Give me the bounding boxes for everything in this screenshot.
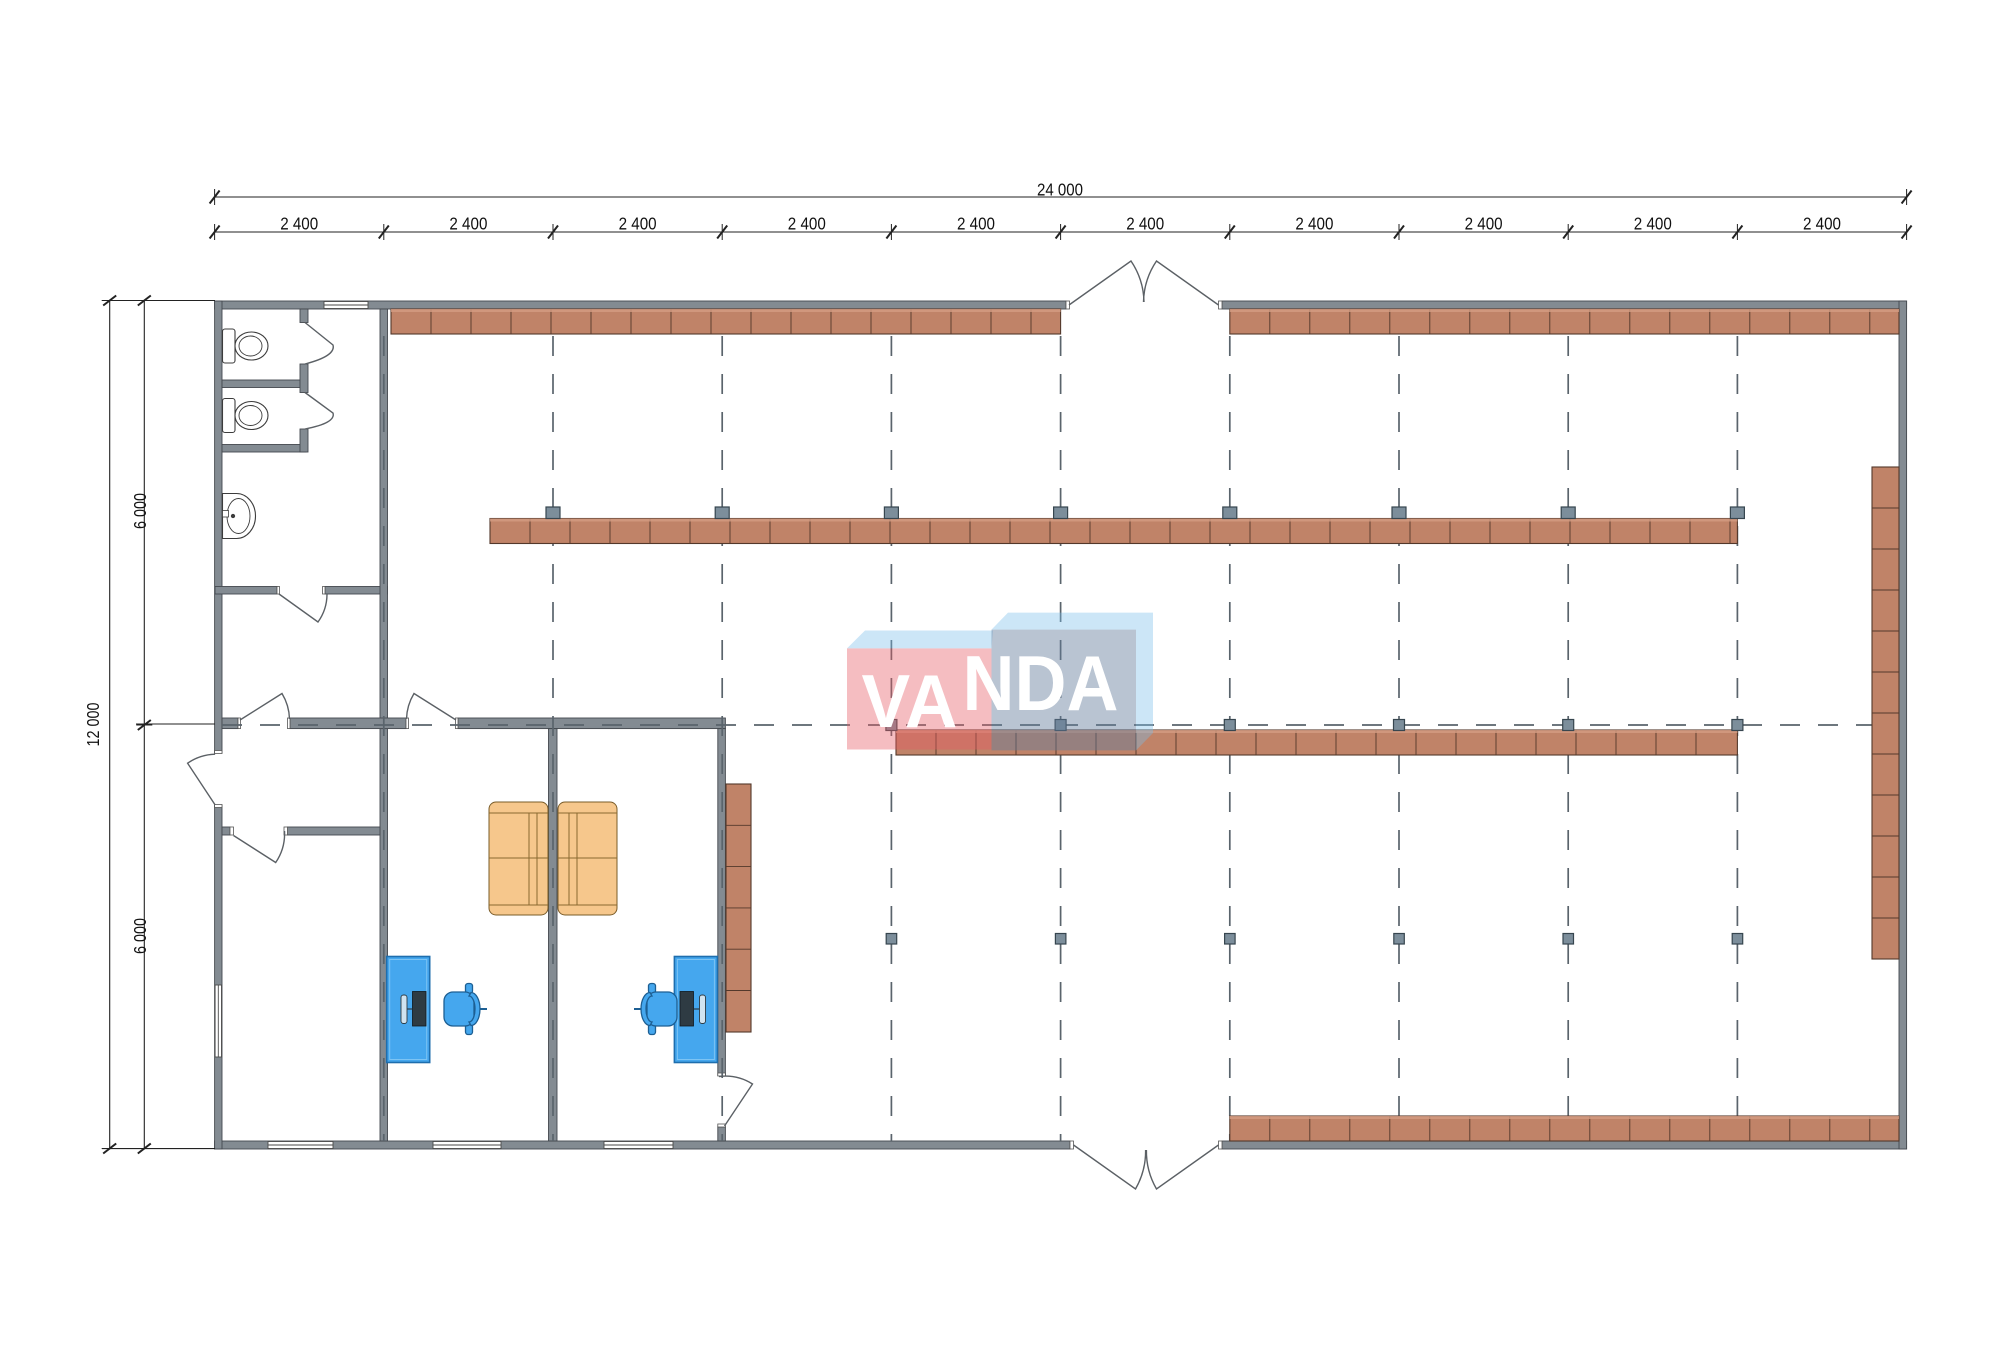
svg-text:6 000: 6 000: [130, 918, 150, 954]
svg-text:2 400: 2 400: [1126, 214, 1164, 234]
svg-text:2 400: 2 400: [1465, 214, 1503, 234]
svg-text:2 400: 2 400: [1803, 214, 1841, 234]
svg-text:2 400: 2 400: [788, 214, 826, 234]
svg-text:VA: VA: [862, 659, 958, 743]
svg-text:6 000: 6 000: [130, 493, 150, 529]
svg-text:2 400: 2 400: [957, 214, 995, 234]
svg-text:2 400: 2 400: [1634, 214, 1672, 234]
svg-text:NDA: NDA: [963, 639, 1119, 727]
svg-text:2 400: 2 400: [280, 214, 318, 234]
svg-text:2 400: 2 400: [619, 214, 657, 234]
svg-text:2 400: 2 400: [449, 214, 487, 234]
svg-text:12 000: 12 000: [83, 702, 103, 746]
svg-text:24 000: 24 000: [1037, 180, 1083, 200]
svg-text:2 400: 2 400: [1295, 214, 1333, 234]
